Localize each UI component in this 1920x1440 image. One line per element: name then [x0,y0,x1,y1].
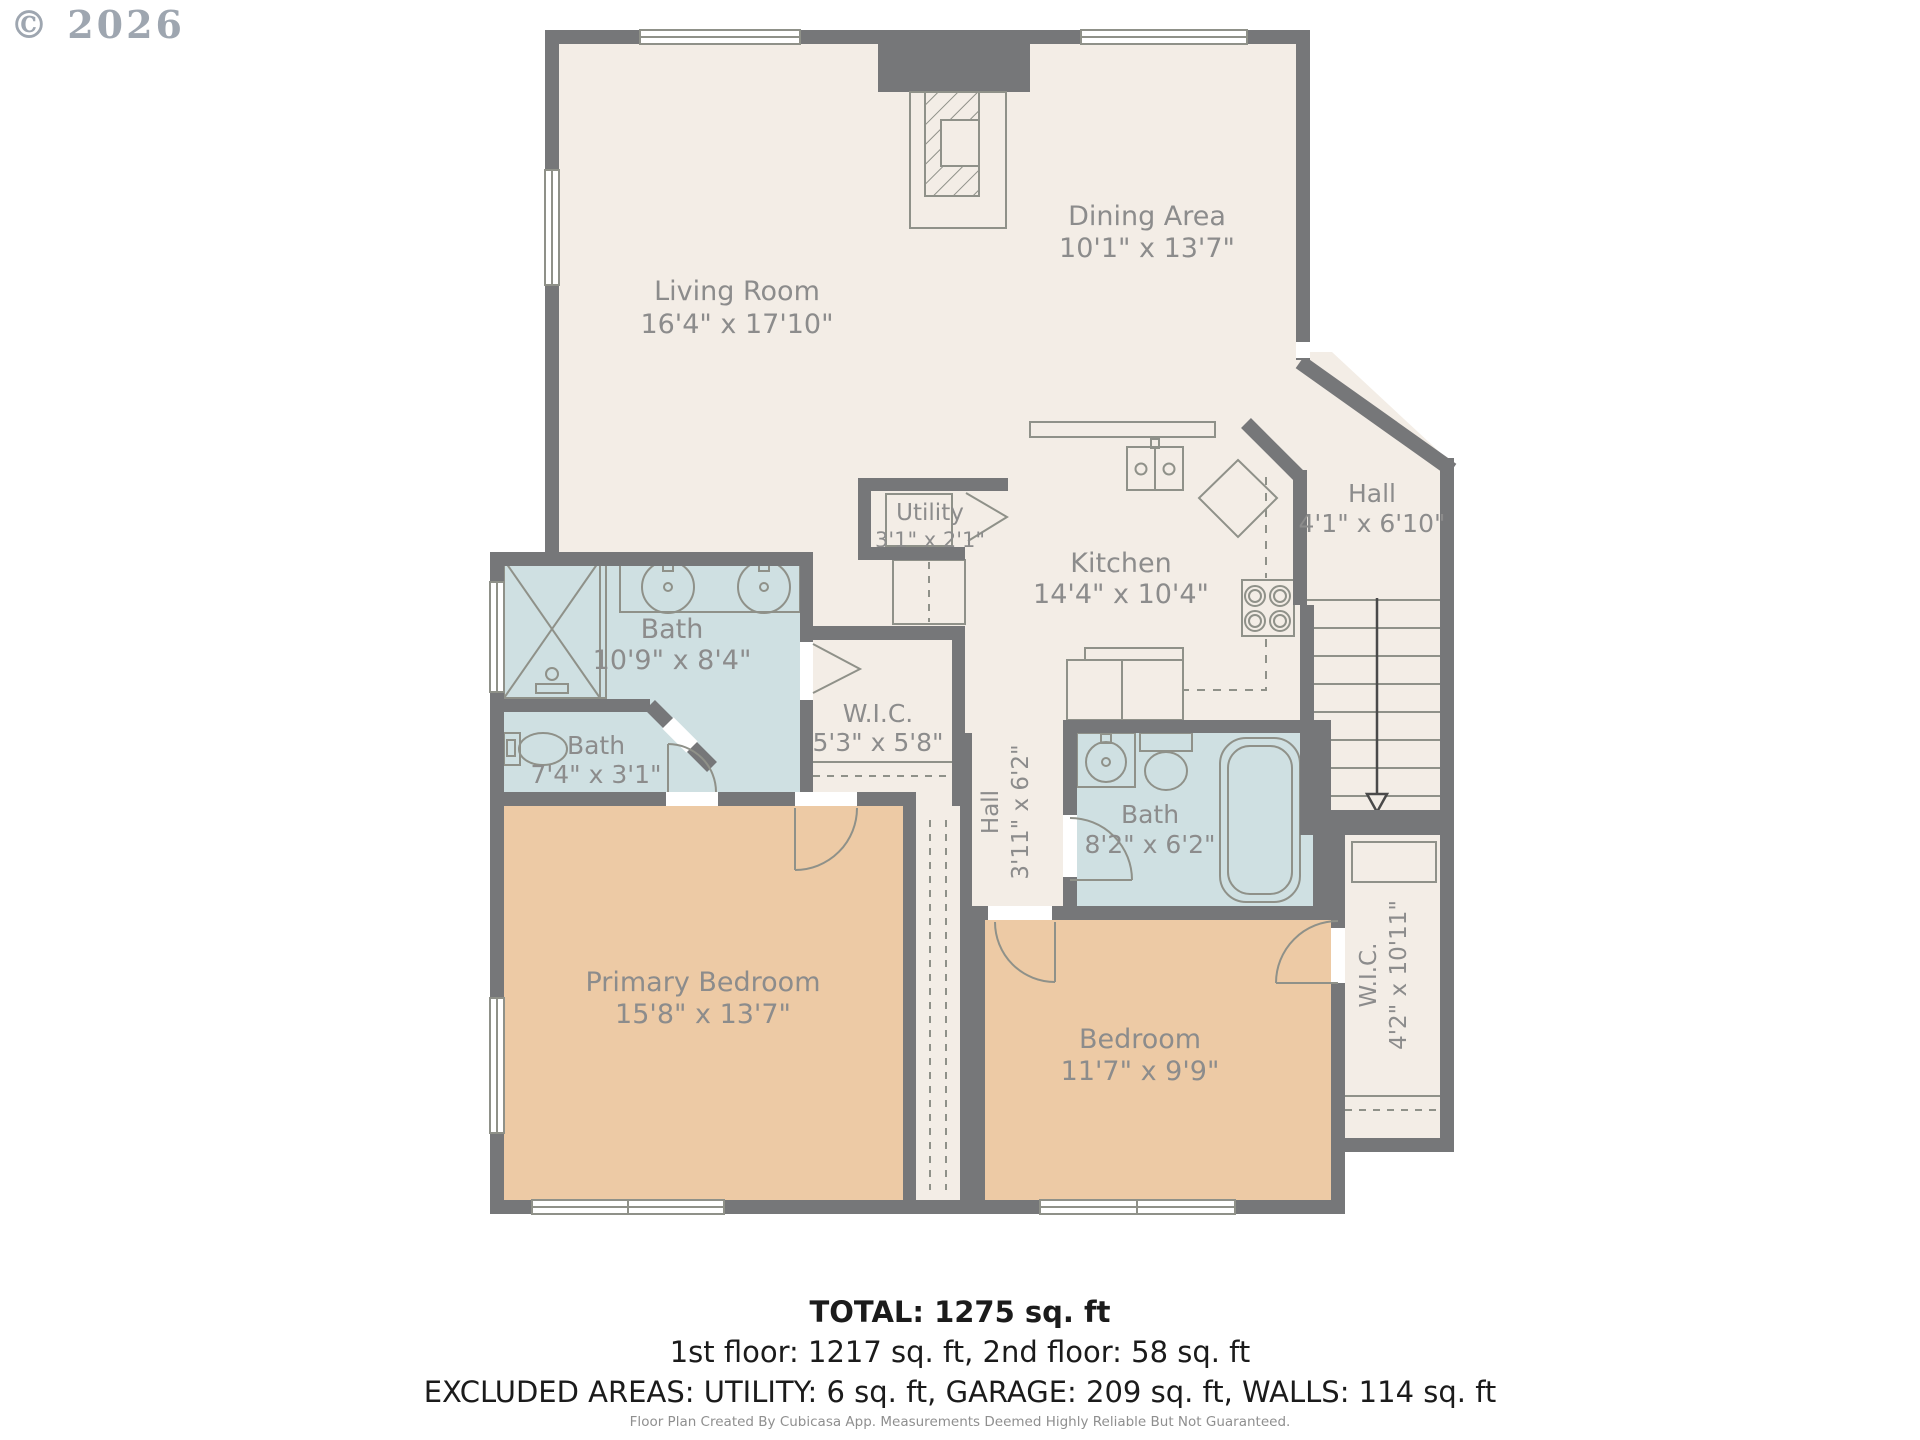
window [490,582,504,692]
room-name: W.I.C. [1356,943,1382,1008]
disclaimer-footer: Floor Plan Created By Cubicasa App. Meas… [0,1414,1920,1430]
room-name: Hall [1348,479,1396,508]
shower [504,560,606,698]
fireplace [910,92,1006,228]
room-name: Kitchen [1070,548,1171,579]
room-dims: 4'1" x 6'10" [1299,509,1446,538]
room-name: Living Room [654,276,820,307]
room-name: Bath [567,731,625,760]
stove [1242,580,1294,636]
room-label-primary: Primary Bedroom 15'8" x 13'7" [585,967,820,1030]
room-dims: 14'4" x 10'4" [1033,579,1209,610]
window [1081,30,1247,44]
room-name: Utility [896,500,964,526]
room-name: Primary Bedroom [585,967,820,998]
window [532,1200,724,1214]
room-dims: 7'4" x 3'1" [530,760,661,789]
room-name: Bedroom [1079,1024,1201,1055]
room-dims: 10'1" x 13'7" [1059,233,1235,264]
room-name: Bath [641,614,704,645]
copyright-watermark: © 2026 [10,2,185,47]
room-name: Bath [1121,800,1179,829]
room-name: Dining Area [1068,201,1226,232]
room-dims: 10'9" x 8'4" [593,645,752,676]
room-dims: 15'8" x 13'7" [615,999,791,1030]
area-summary: TOTAL: 1275 sq. ft 1st floor: 1217 sq. f… [0,1292,1920,1412]
room-dims: 8'2" x 6'2" [1084,830,1215,859]
window [640,30,800,44]
chimney [878,30,1030,92]
window [490,998,504,1133]
floor-areas-line: 1st floor: 1217 sq. ft, 2nd floor: 58 sq… [0,1332,1920,1372]
room-dims: 3'11" x 6'2" [1008,744,1034,879]
room-dims: 4'2" x 10'11" [1386,900,1412,1050]
room-label-dining: Dining Area 10'1" x 13'7" [1059,201,1235,264]
floor-plan-drawing: Living Room 16'4" x 17'10" Dining Area 1… [0,0,1920,1260]
window [1040,1200,1235,1214]
room-dims: 5'3" x 5'8" [812,728,943,757]
window [545,170,559,285]
room-name: W.I.C. [843,699,914,728]
floor-plan-page: © 2026 [0,0,1920,1440]
room-dims: 16'4" x 17'10" [640,309,833,340]
room-dims: 3'1" x 2'1" [875,528,985,552]
room-label-bedroom: Bedroom 11'7" x 9'9" [1061,1024,1220,1087]
total-area: TOTAL: 1275 sq. ft [0,1292,1920,1332]
excluded-areas-line: EXCLUDED AREAS: UTILITY: 6 sq. ft, GARAG… [0,1372,1920,1412]
room-dims: 11'7" x 9'9" [1061,1056,1220,1087]
hall-upper-floor [1303,352,1446,600]
room-name: Hall [978,790,1004,834]
